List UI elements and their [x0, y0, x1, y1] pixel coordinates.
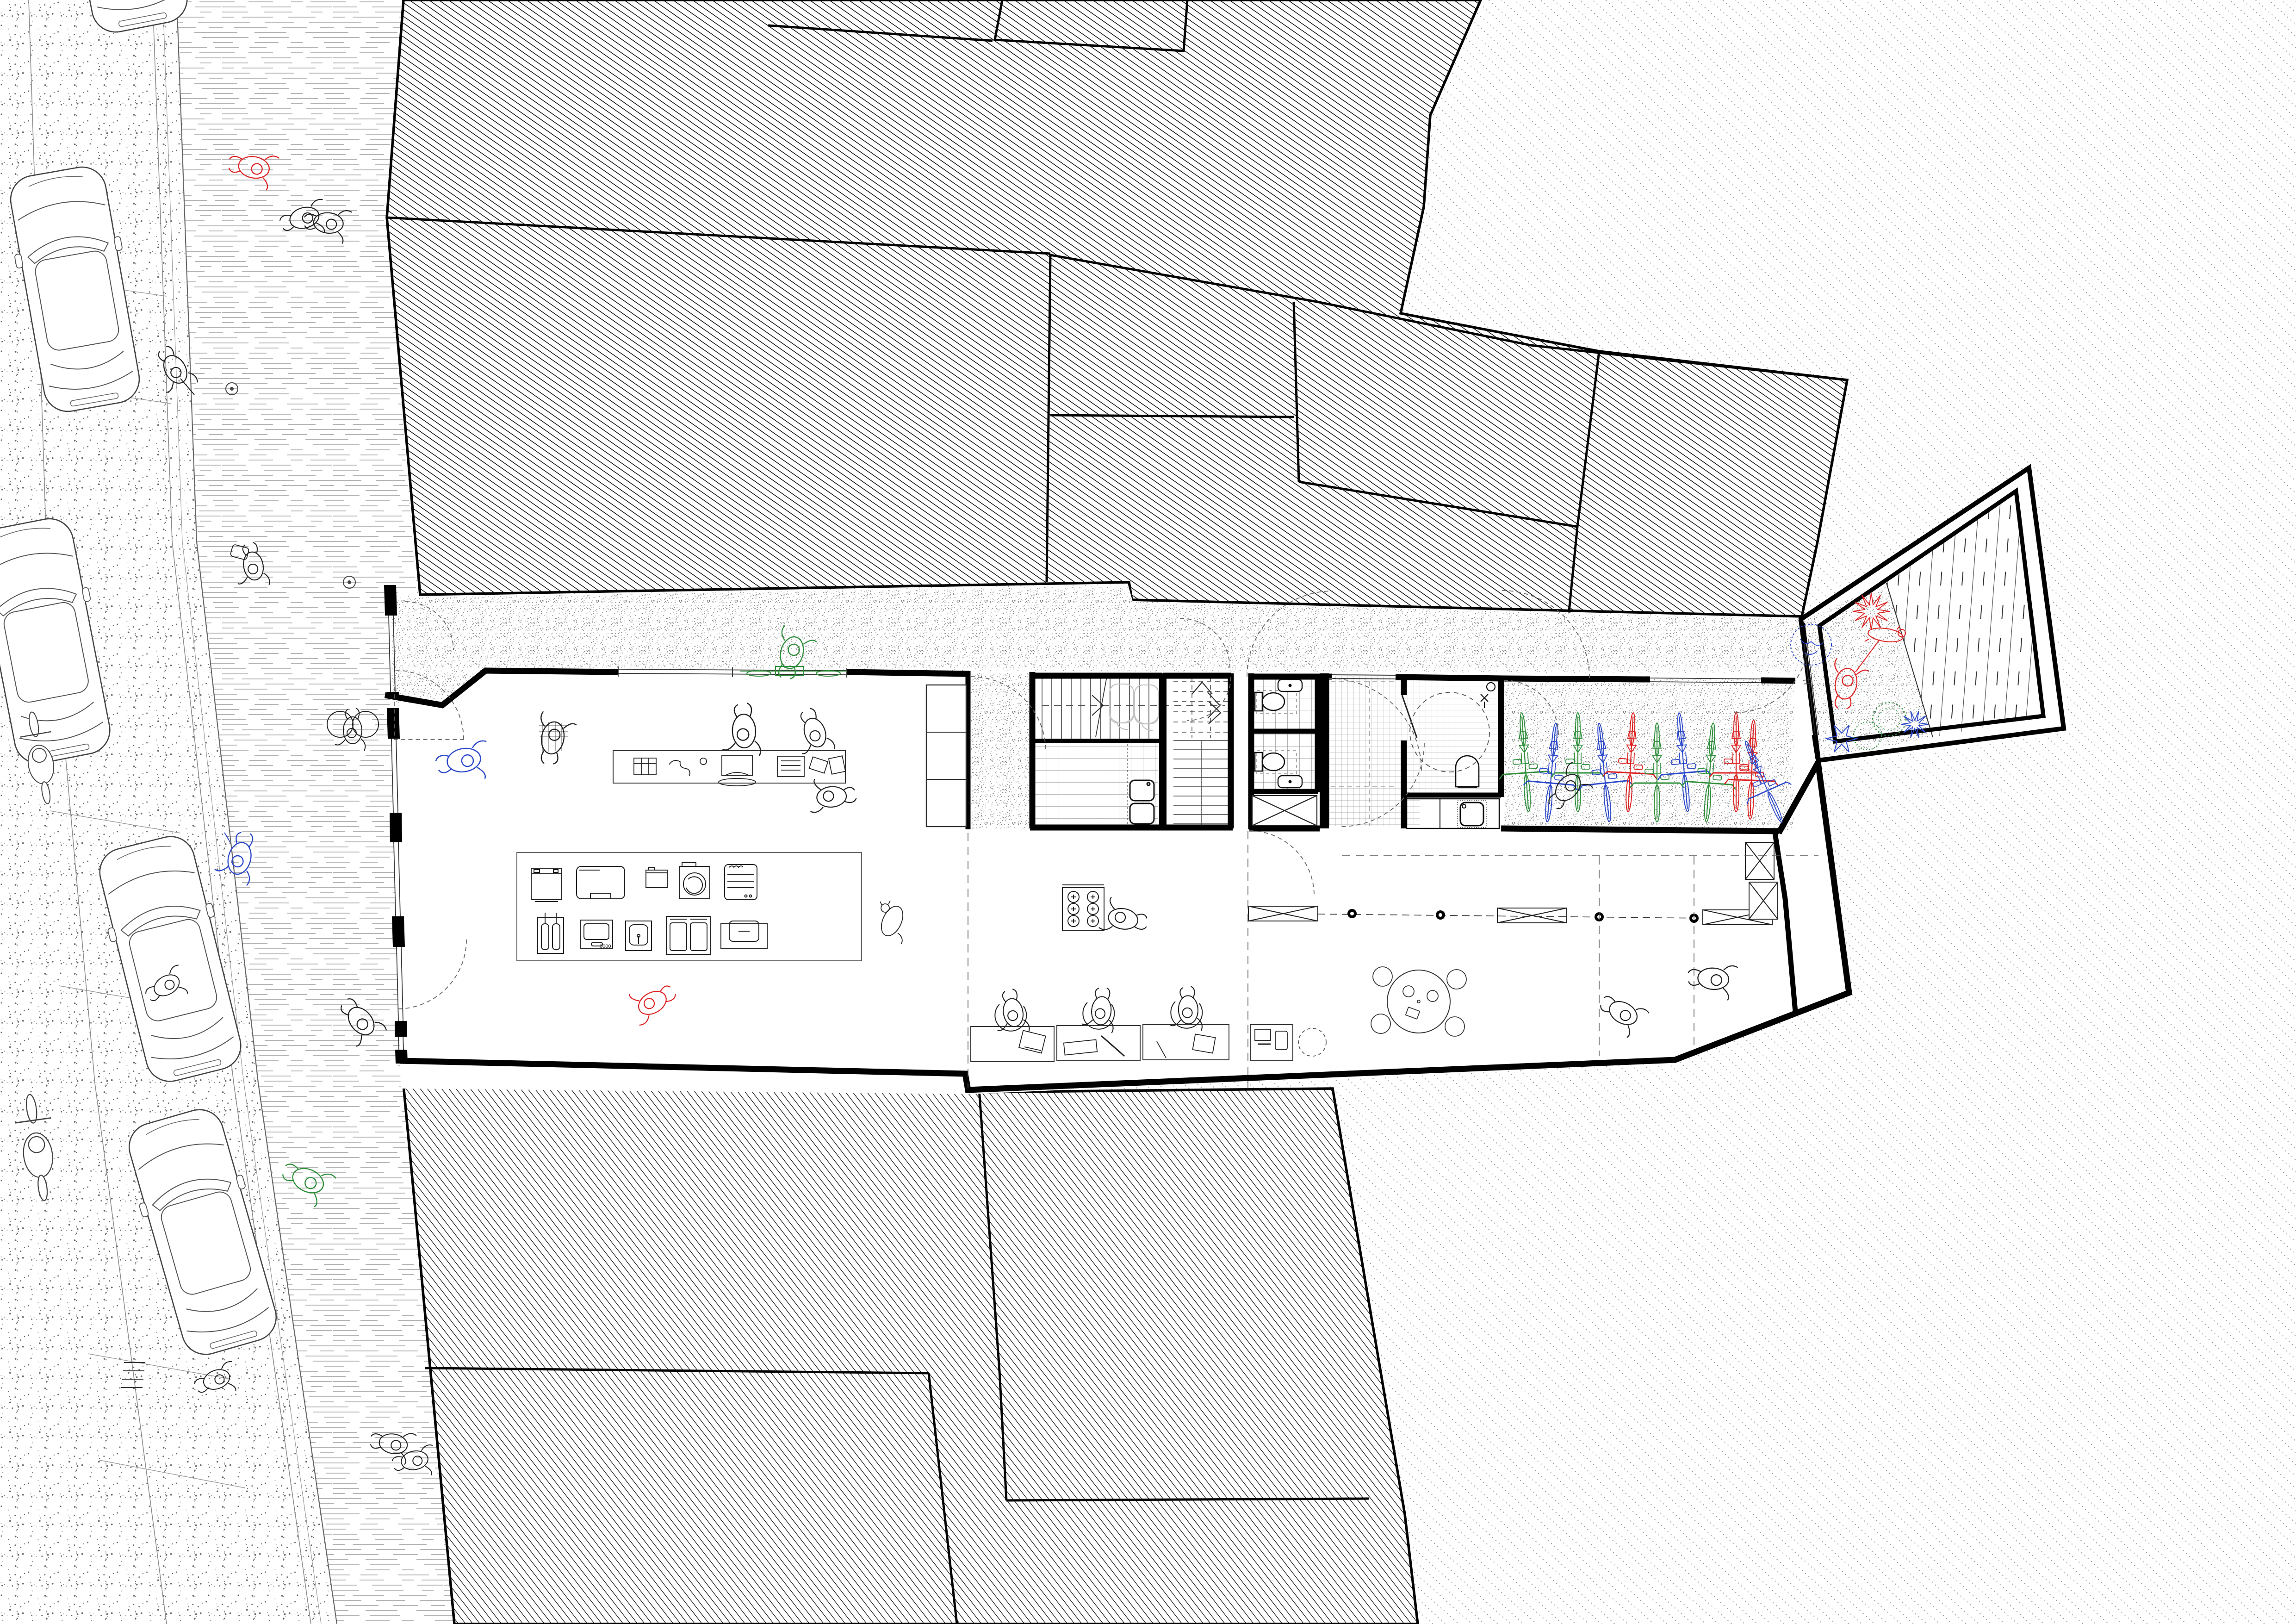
svg-text:0000: 0000: [600, 944, 611, 949]
